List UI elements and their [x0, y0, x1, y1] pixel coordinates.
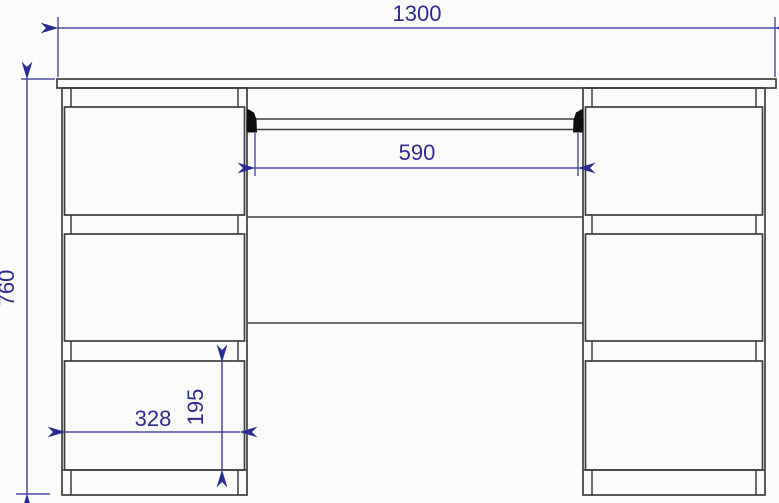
right-drawer-bottom — [586, 361, 763, 470]
desk-top — [57, 79, 776, 88]
dim-label-drawer-height: 195 — [183, 389, 208, 426]
dim-label-opening-width: 590 — [399, 140, 436, 165]
right-drawer-middle — [586, 234, 763, 341]
right-drawer-top — [586, 107, 763, 215]
left-pedestal — [62, 88, 247, 495]
dim-drawer-width: 328 — [65, 406, 240, 432]
dim-overall-width: 1300 — [58, 1, 775, 77]
dim-opening-width: 590 — [255, 133, 578, 176]
dim-overall-height: 760 — [0, 79, 55, 494]
dim-label-drawer-width: 328 — [135, 406, 172, 431]
keyboard-tray-slab — [247, 119, 583, 130]
tray-bracket-right — [573, 109, 583, 133]
keyboard-tray — [247, 109, 583, 133]
dim-label-overall-height: 760 — [0, 270, 19, 307]
left-drawer-middle — [65, 234, 245, 341]
right-side-panel-lines — [592, 88, 756, 495]
modesty-panel-lines — [247, 217, 583, 323]
right-pedestal-outline — [583, 88, 765, 495]
dim-drawer-height: 195 — [183, 362, 222, 470]
left-side-panel-lines — [71, 88, 238, 495]
drawing-canvas: 1300 760 590 328 195 — [0, 0, 779, 503]
left-pedestal-outline — [62, 88, 247, 495]
tray-bracket-left — [247, 109, 257, 133]
desk-dimension-drawing: 1300 760 590 328 195 — [0, 0, 779, 503]
dim-label-overall-width: 1300 — [393, 1, 442, 26]
left-drawer-top — [65, 107, 245, 215]
right-pedestal — [583, 88, 765, 495]
